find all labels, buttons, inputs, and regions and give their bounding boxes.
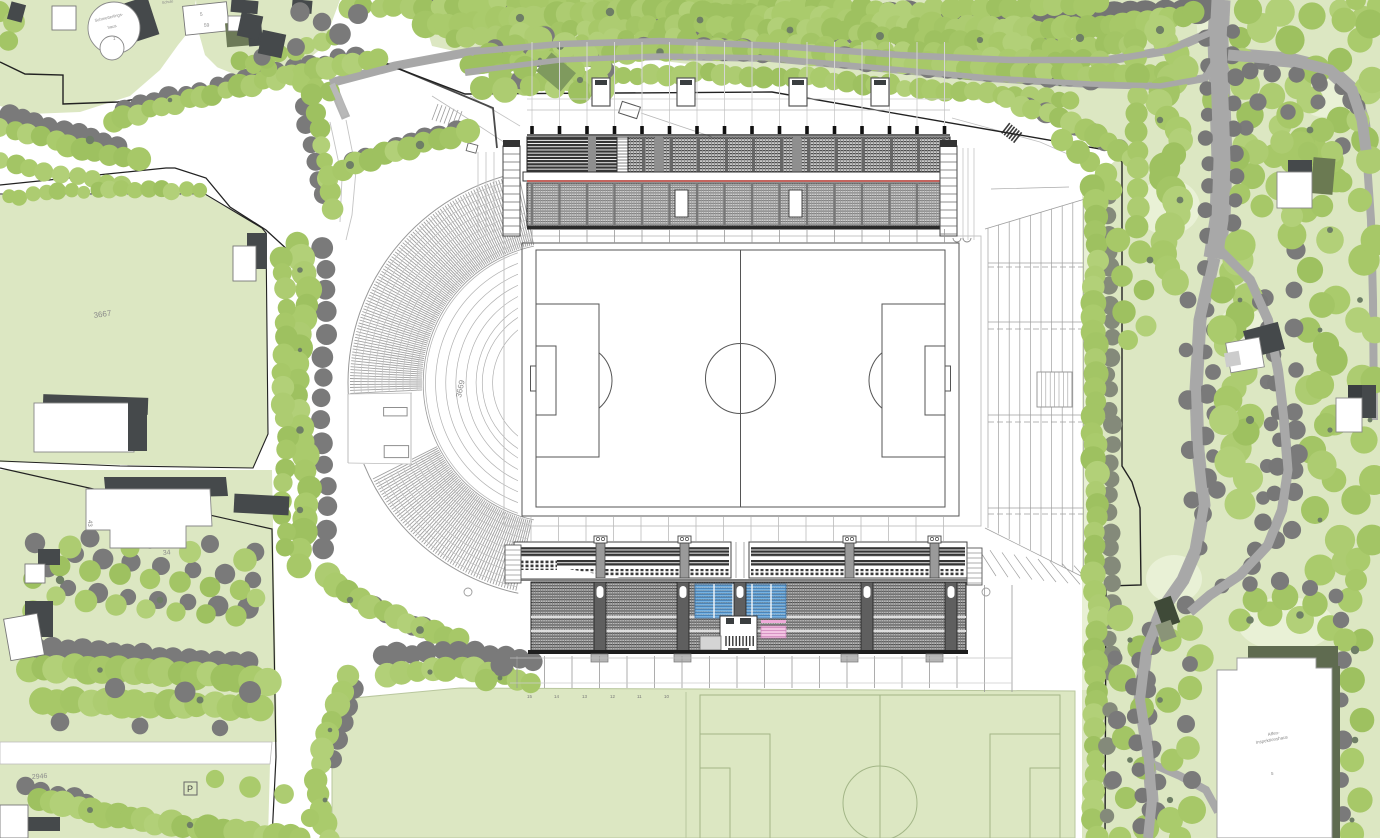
svg-text:2946: 2946 xyxy=(32,773,48,781)
svg-text:11: 11 xyxy=(637,694,642,699)
svg-text:13: 13 xyxy=(582,694,588,699)
svg-text:34: 34 xyxy=(163,549,171,557)
svg-text:12: 12 xyxy=(610,694,616,699)
svg-text:P: P xyxy=(187,784,193,794)
svg-text:43: 43 xyxy=(86,520,92,527)
svg-text:14: 14 xyxy=(554,694,560,699)
svg-text:15: 15 xyxy=(527,694,533,699)
svg-text:10: 10 xyxy=(664,694,670,699)
svg-text:59: 59 xyxy=(204,22,210,29)
